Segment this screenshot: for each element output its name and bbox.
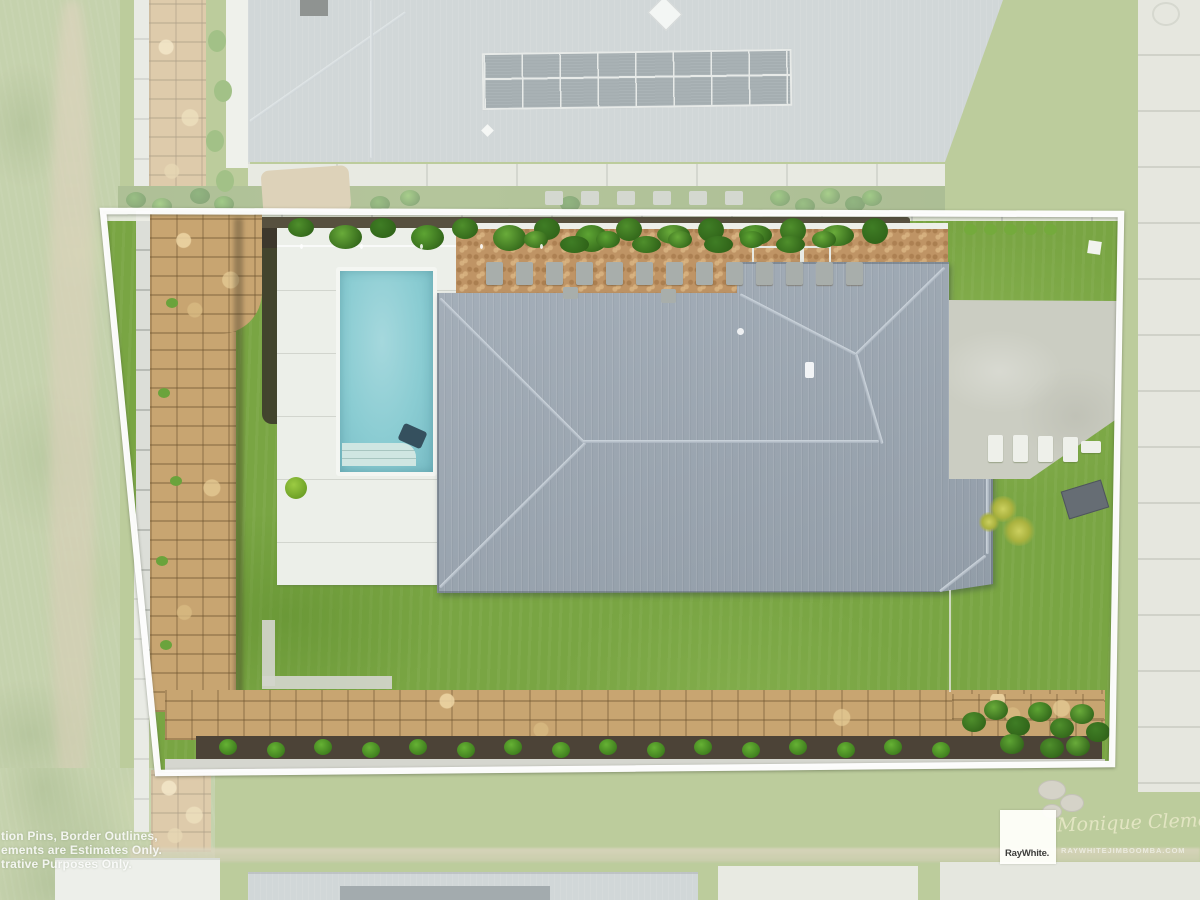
aerial-property-photo: tion Pins, Border Outlines, ements are E… [0, 0, 1200, 900]
property-boundary-outline [103, 211, 1121, 773]
raywhite-logo-text: RayWhite. [1005, 848, 1049, 859]
disclaimer-line: tion Pins, Border Outlines, [1, 829, 162, 843]
disclaimer-line: trative Purposes Only. [1, 857, 162, 871]
raywhite-logo: RayWhite. [1000, 810, 1056, 864]
boundary-overlay [0, 0, 1200, 900]
disclaimer-text: tion Pins, Border Outlines, ements are E… [1, 829, 162, 871]
disclaimer-line: ements are Estimates Only. [1, 843, 162, 857]
agency-url-text: RAYWHITEJIMBOOMBA.COM [1061, 846, 1185, 855]
